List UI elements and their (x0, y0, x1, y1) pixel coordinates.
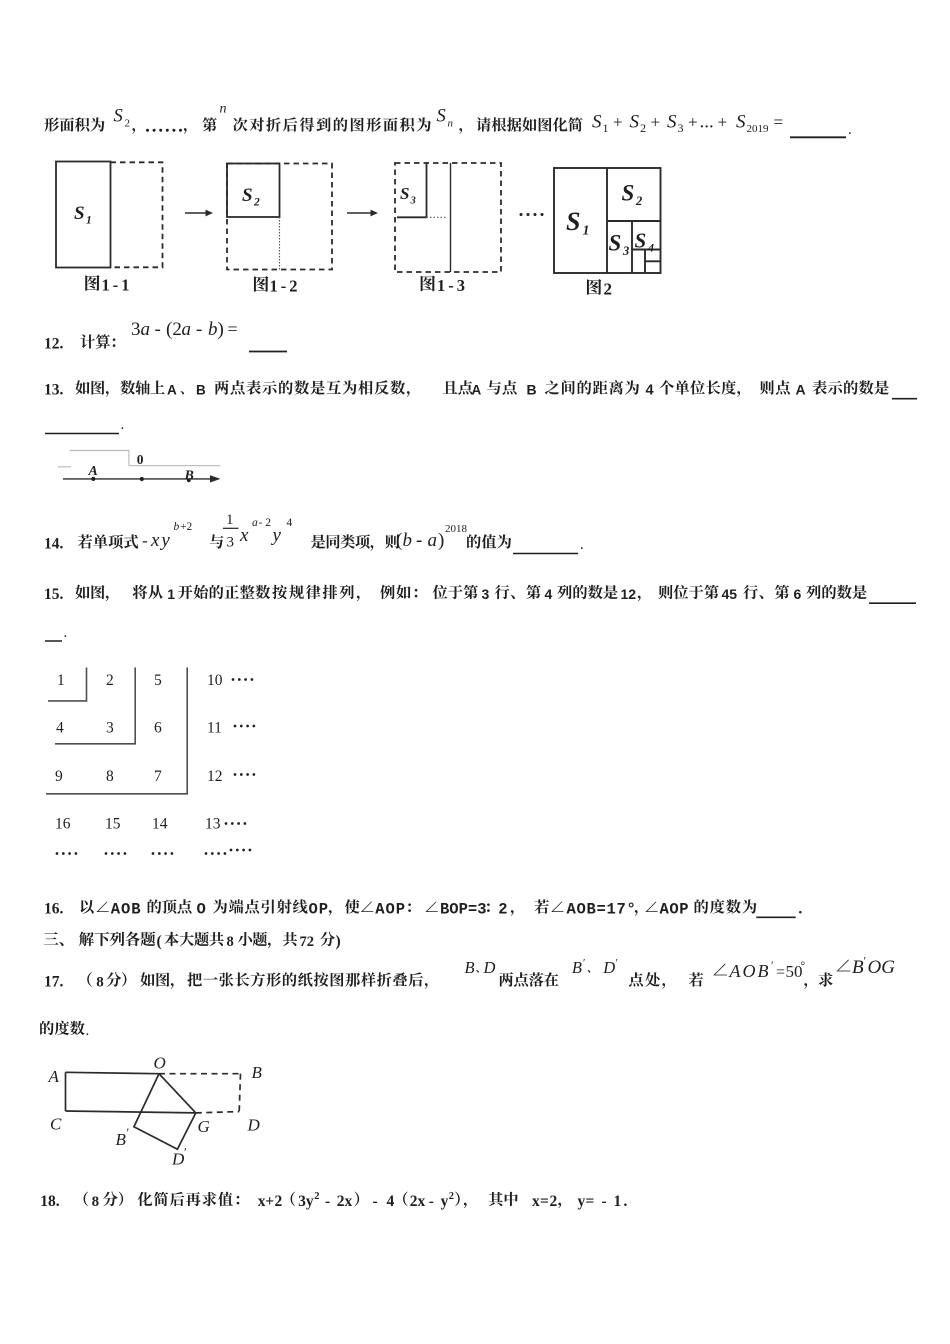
svg-text:BOP=3: BOP=3 (440, 901, 487, 919)
svg-text:B: B (465, 958, 475, 977)
svg-text:13: 13 (205, 816, 221, 833)
svg-text:n: n (448, 118, 454, 130)
svg-text:14.: 14. (44, 536, 64, 553)
svg-text:.: . (86, 1023, 90, 1039)
svg-text:S: S (635, 229, 647, 253)
svg-text:1: 1 (57, 672, 65, 689)
svg-text:+: + (688, 113, 698, 132)
svg-text:2: 2 (640, 121, 646, 135)
svg-text:4: 4 (647, 241, 654, 255)
svg-text:8: 8 (106, 768, 114, 785)
svg-text:4: 4 (56, 720, 64, 737)
svg-text:S: S (736, 112, 746, 133)
svg-text:.: . (624, 1193, 628, 1210)
svg-text:-: - (142, 531, 148, 550)
svg-text:+: + (718, 113, 728, 132)
svg-text:1-1: 1-1 (102, 276, 133, 295)
svg-text:D: D (602, 958, 615, 977)
svg-text:1: 1 (614, 1193, 622, 1210)
svg-text:2: 2 (275, 1193, 283, 1210)
svg-text:3: 3 (131, 319, 141, 340)
svg-text:′: ′ (184, 1146, 187, 1160)
svg-text:4: 4 (646, 383, 654, 399)
svg-text:A: A (472, 383, 482, 398)
svg-text:B: B (852, 957, 864, 978)
svg-text:2: 2 (498, 901, 507, 919)
svg-text:B: B (184, 469, 194, 484)
svg-text:2x: 2x (337, 1193, 353, 1210)
svg-text:S: S (630, 112, 640, 133)
svg-text:): ) (438, 530, 444, 551)
svg-text:=: = (776, 964, 785, 981)
svg-text:OG: OG (868, 957, 896, 978)
svg-text:-: - (416, 530, 422, 551)
svg-text:B: B (252, 1063, 263, 1082)
svg-text:6: 6 (154, 720, 162, 737)
svg-text:2: 2 (550, 1193, 558, 1210)
svg-text:1: 1 (583, 224, 590, 239)
svg-text:2: 2 (125, 118, 131, 130)
svg-text:=: = (228, 319, 238, 339)
svg-text:a: a (141, 319, 151, 340)
svg-text:AOB: AOB (729, 961, 771, 981)
svg-text:B: B (196, 383, 206, 398)
svg-text:′: ′ (616, 957, 618, 969)
svg-text:C: C (50, 1115, 62, 1134)
svg-text:-: - (429, 1193, 434, 1210)
svg-text:-: - (325, 1193, 330, 1210)
svg-text:a: a (252, 517, 258, 529)
svg-text:16.: 16. (44, 901, 64, 918)
svg-text:.: . (798, 901, 802, 918)
svg-text:′: ′ (864, 954, 867, 968)
svg-text:(: ( (157, 933, 162, 950)
svg-text:y: y (441, 1193, 449, 1210)
svg-text:72: 72 (300, 934, 315, 950)
svg-text:+: + (265, 1193, 274, 1210)
svg-text:3: 3 (482, 586, 490, 602)
svg-text:D: D (247, 1116, 261, 1135)
svg-text:): ) (336, 933, 341, 950)
svg-text:S: S (400, 184, 409, 203)
svg-text:+2: +2 (180, 521, 192, 533)
svg-text:2: 2 (106, 672, 114, 689)
svg-text:8: 8 (227, 934, 234, 950)
svg-text:-: - (196, 319, 202, 340)
svg-text:15: 15 (105, 816, 121, 833)
svg-text:A: A (48, 1067, 60, 1086)
svg-text:12: 12 (621, 586, 637, 602)
svg-text:.: . (121, 417, 125, 433)
svg-text:xy: xy (150, 530, 172, 551)
svg-text:1: 1 (167, 586, 175, 602)
svg-text:10: 10 (207, 672, 223, 689)
svg-text:6: 6 (794, 586, 802, 602)
svg-text:17.: 17. (44, 974, 64, 991)
svg-text:3y: 3y (298, 1193, 314, 1210)
svg-text:y: y (578, 1193, 586, 1210)
svg-text:S: S (566, 207, 580, 236)
svg-text:b: b (208, 319, 218, 340)
svg-text:S: S (622, 181, 635, 206)
svg-text:AOP: AOP (375, 901, 406, 919)
svg-text:S: S (242, 185, 253, 206)
svg-text:9: 9 (55, 768, 63, 785)
svg-text:2: 2 (449, 1191, 454, 1202)
svg-text:A: A (167, 383, 177, 398)
svg-text:=: = (774, 113, 784, 132)
svg-text:O: O (154, 1054, 166, 1073)
svg-text:A: A (796, 382, 806, 398)
svg-text:3: 3 (622, 244, 629, 258)
svg-text:x: x (532, 1193, 540, 1210)
svg-text:1: 1 (603, 121, 609, 135)
svg-text:-: - (373, 1193, 378, 1210)
svg-text:3: 3 (227, 535, 235, 551)
svg-text:.: . (64, 625, 68, 641)
svg-text:AOB=17°: AOB=17° (567, 901, 637, 919)
svg-text:S: S (114, 107, 123, 127)
svg-text:+: + (651, 113, 661, 132)
svg-text:1: 1 (226, 512, 234, 528)
svg-text:a: a (428, 530, 438, 551)
svg-text:2: 2 (253, 197, 260, 209)
svg-text:B: B (572, 958, 582, 977)
svg-text:B: B (527, 382, 537, 398)
svg-text:): ) (218, 319, 224, 340)
svg-text:...: ... (700, 112, 714, 133)
svg-text:A: A (88, 464, 98, 479)
svg-text:12.: 12. (44, 336, 64, 353)
svg-text:S: S (592, 112, 602, 133)
svg-text:S: S (609, 231, 622, 256)
svg-text:3: 3 (410, 196, 416, 207)
svg-text:13.: 13. (44, 382, 64, 399)
svg-text:(: ( (396, 530, 402, 551)
svg-text:15.: 15. (44, 586, 64, 603)
svg-text:2: 2 (635, 194, 642, 208)
svg-text:4: 4 (287, 517, 293, 529)
svg-text:S: S (74, 203, 85, 224)
svg-text:b: b (403, 530, 413, 551)
svg-text:AOP: AOP (660, 901, 690, 919)
svg-text:(2: (2 (166, 319, 182, 340)
svg-text:1-3: 1-3 (437, 276, 468, 295)
svg-text:=: = (586, 1193, 595, 1210)
svg-text:3: 3 (678, 121, 684, 135)
svg-text:8: 8 (96, 975, 104, 991)
svg-text:-: - (155, 319, 161, 340)
svg-text:45: 45 (722, 586, 738, 602)
svg-text:2018: 2018 (445, 523, 468, 535)
svg-text:′: ′ (127, 1126, 130, 1140)
svg-text:′: ′ (771, 958, 774, 972)
svg-text:4: 4 (387, 1193, 395, 1210)
svg-text:S: S (437, 107, 446, 127)
svg-text:- 2: - 2 (259, 517, 272, 529)
svg-text:4: 4 (545, 586, 553, 602)
svg-text:B: B (116, 1130, 127, 1149)
svg-text:2019: 2019 (747, 123, 770, 135)
svg-text:O: O (197, 901, 206, 919)
svg-text:′: ′ (583, 957, 585, 969)
svg-text:y: y (271, 525, 282, 546)
svg-text:+: + (613, 113, 623, 132)
svg-text:18.: 18. (40, 1193, 60, 1210)
svg-text:7: 7 (154, 768, 162, 785)
svg-text:2: 2 (314, 1191, 319, 1202)
svg-text:G: G (198, 1117, 210, 1136)
svg-text:x: x (239, 525, 249, 546)
svg-text:°: ° (801, 961, 806, 973)
svg-text:12: 12 (207, 768, 223, 785)
svg-text:5: 5 (154, 672, 162, 689)
svg-text:16: 16 (55, 816, 71, 833)
svg-text:-: - (602, 1193, 607, 1210)
svg-text:.: . (848, 122, 852, 138)
svg-text:11: 11 (207, 720, 222, 737)
svg-text:AOB: AOB (111, 901, 142, 919)
svg-text:2x: 2x (410, 1193, 426, 1210)
svg-text:3: 3 (106, 720, 114, 737)
svg-text:S: S (667, 112, 677, 133)
svg-text:2: 2 (604, 280, 613, 299)
svg-text:n: n (220, 102, 227, 117)
svg-text:0: 0 (137, 452, 144, 467)
svg-text:D: D (483, 958, 496, 977)
svg-text:8: 8 (92, 1194, 100, 1210)
svg-text:OP: OP (309, 901, 329, 919)
svg-text:1: 1 (86, 215, 92, 227)
svg-text:b: b (174, 521, 180, 533)
svg-text:1-2: 1-2 (270, 277, 301, 296)
svg-text:.: . (580, 537, 584, 553)
svg-text:a: a (182, 319, 192, 340)
svg-text:D: D (171, 1150, 185, 1169)
svg-text:14: 14 (152, 816, 168, 833)
svg-text:=: = (540, 1193, 549, 1210)
